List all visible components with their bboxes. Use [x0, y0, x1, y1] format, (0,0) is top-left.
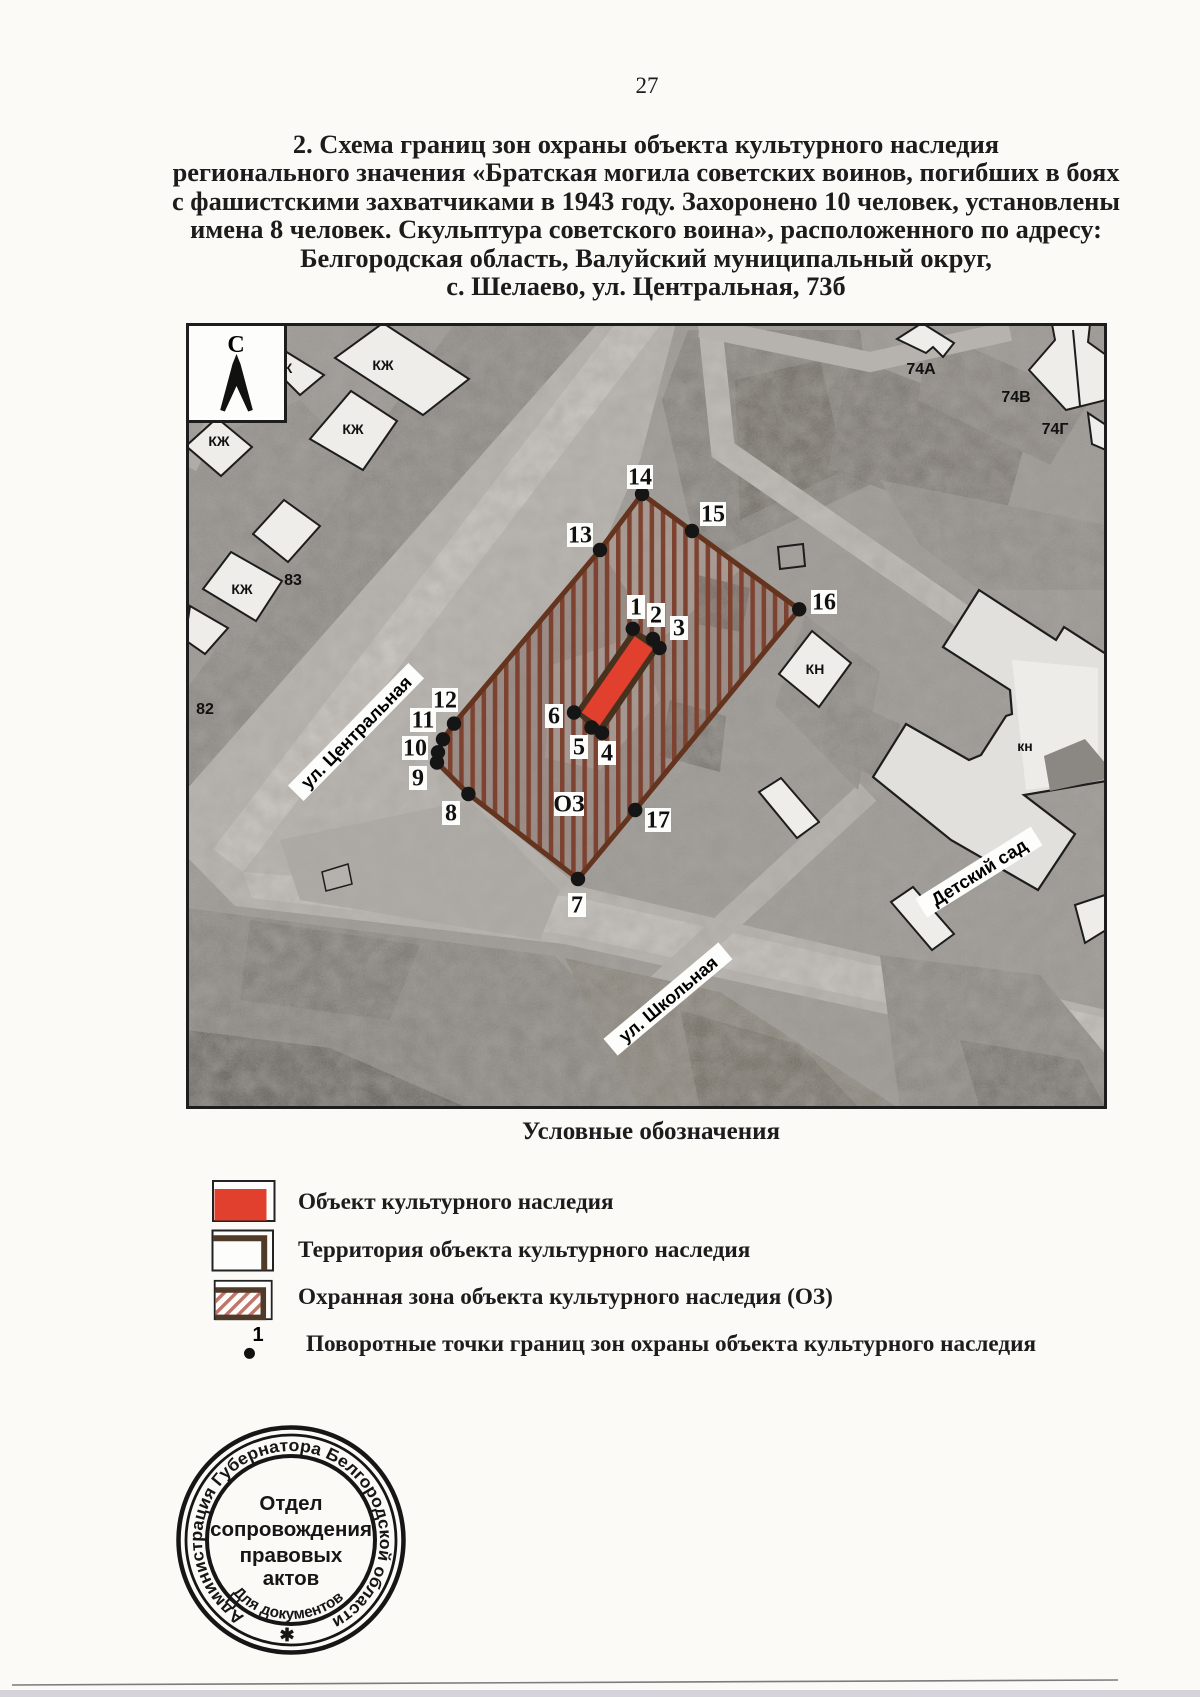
svg-text:С: С	[227, 332, 244, 358]
svg-text:сопровождения: сопровождения	[210, 1518, 372, 1541]
svg-text:1: 1	[252, 1324, 263, 1346]
svg-text:1: 1	[630, 595, 642, 621]
svg-text:7: 7	[571, 893, 583, 919]
svg-text:КЖ: КЖ	[342, 421, 364, 437]
svg-text:8: 8	[445, 801, 457, 827]
svg-text:актов: актов	[263, 1567, 320, 1590]
svg-text:КН: КН	[806, 661, 825, 677]
svg-text:ОЗ: ОЗ	[553, 792, 585, 818]
svg-text:КЖ: КЖ	[208, 433, 230, 449]
svg-text:Отдел: Отдел	[259, 1492, 322, 1515]
svg-text:13: 13	[568, 523, 592, 549]
svg-text:3: 3	[673, 616, 685, 642]
svg-text:16: 16	[812, 590, 836, 616]
svg-text:2: 2	[650, 603, 662, 629]
svg-text:правовых: правовых	[240, 1544, 343, 1567]
svg-text:кн: кн	[1017, 738, 1032, 754]
svg-text:КЖ: КЖ	[372, 357, 394, 373]
svg-text:КЖ: КЖ	[231, 581, 253, 597]
svg-text:12: 12	[433, 688, 457, 714]
svg-text:14: 14	[628, 465, 652, 491]
svg-text:11: 11	[412, 708, 435, 734]
svg-text:82: 82	[196, 701, 214, 718]
svg-text:5: 5	[573, 735, 585, 761]
svg-text:9: 9	[412, 766, 424, 792]
svg-text:✱: ✱	[279, 1625, 294, 1645]
svg-text:4: 4	[601, 741, 613, 767]
svg-text:17: 17	[646, 808, 670, 834]
svg-text:74В: 74В	[1001, 389, 1030, 406]
svg-text:74Г: 74Г	[1042, 421, 1069, 438]
svg-text:6: 6	[548, 704, 560, 730]
svg-text:83: 83	[284, 572, 302, 589]
svg-text:74А: 74А	[906, 361, 936, 378]
svg-text:15: 15	[701, 502, 725, 528]
svg-text:10: 10	[403, 736, 427, 762]
